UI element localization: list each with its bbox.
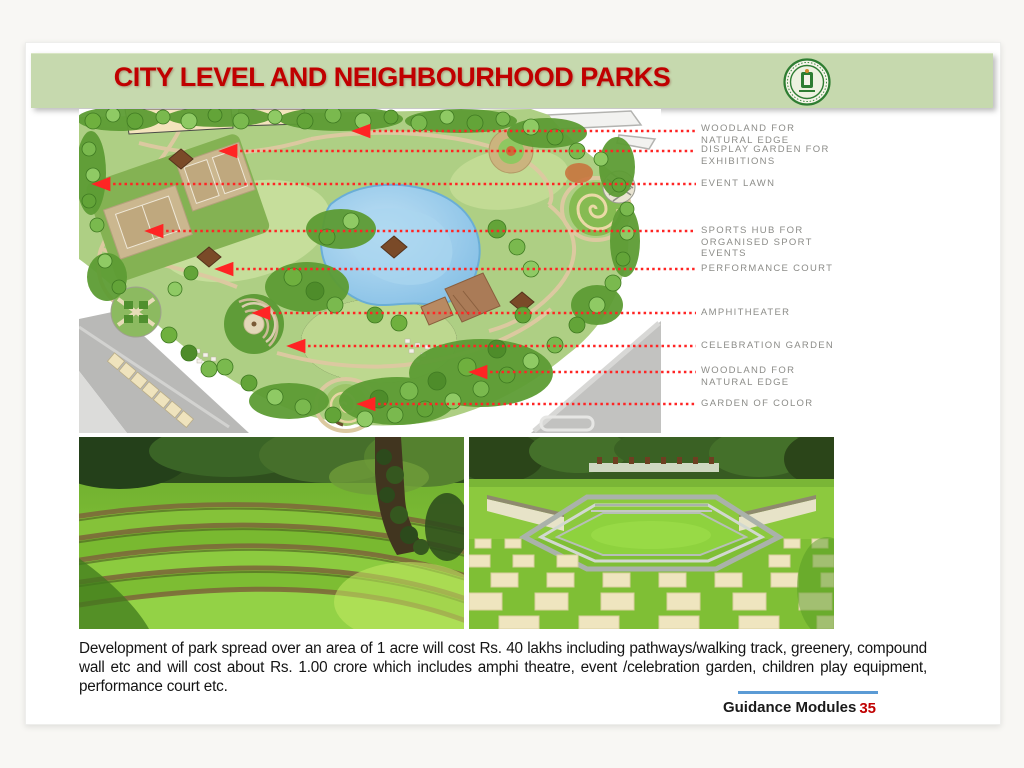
footer-accent-line [738, 691, 878, 694]
footer-label: Guidance Modules [723, 699, 856, 716]
sunken-garden-photo [469, 437, 834, 629]
page-number: 35 [859, 700, 876, 717]
plan-label-amphitheater: AMPHITHEATER [701, 307, 841, 319]
plan-label-celebration-garden: CELEBRATION GARDEN [701, 340, 841, 352]
park-master-plan [79, 109, 661, 433]
header-banner: CITY LEVEL AND NEIGHBOURHOOD PARKS [31, 53, 993, 108]
plan-label-display-garden: DISPLAY GARDEN FOR EXHIBITIONS [701, 144, 841, 167]
plan-label-woodland-edge-1: WOODLAND FOR NATURAL EDGE [701, 123, 841, 146]
amphitheatre-photo [79, 437, 464, 629]
plan-label-woodland-edge-2: WOODLAND FOR NATURAL EDGE [701, 365, 841, 388]
description-text: Development of park spread over an area … [79, 639, 927, 696]
plan-label-performance-court: PERFORMANCE COURT [701, 263, 841, 275]
plan-label-garden-of-color: GARDEN OF COLOR [701, 398, 841, 410]
government-seal-icon [783, 58, 831, 106]
slide: CITY LEVEL AND NEIGHBOURHOOD PARKS [25, 42, 1001, 725]
footer: Guidance Modules35 [723, 699, 876, 716]
page-title: CITY LEVEL AND NEIGHBOURHOOD PARKS [31, 62, 753, 93]
plan-label-event-lawn: EVENT LAWN [701, 178, 841, 190]
plan-label-sports-hub: SPORTS HUB FOR ORGANISED SPORT EVENTS [701, 225, 841, 260]
